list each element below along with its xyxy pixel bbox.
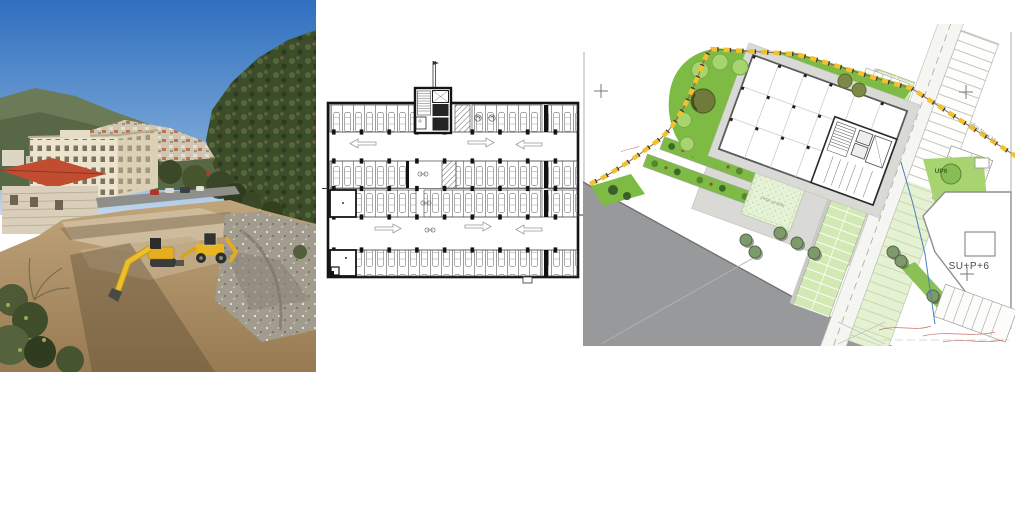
site-plan: Dečje igralište xyxy=(583,24,1015,346)
large-olive-tree xyxy=(691,89,715,113)
elevator-shaft xyxy=(433,104,449,116)
section-marker xyxy=(433,61,439,88)
dark-car xyxy=(180,187,190,193)
floor-plan-panel xyxy=(320,55,585,290)
photo-panel xyxy=(0,0,316,372)
site-plan-panel: Dečje igralište xyxy=(583,24,1015,346)
red-car xyxy=(150,190,159,195)
white-van xyxy=(196,186,204,191)
worker-figure xyxy=(207,171,210,176)
stair-core xyxy=(415,88,451,133)
page-canvas: Dečje igralište xyxy=(0,0,1024,512)
street-name-label: ulica Nova 13 xyxy=(969,121,997,144)
white-car xyxy=(165,188,174,193)
adjacent-building-label: SU+P+6 xyxy=(949,261,990,272)
garage-floor-plan xyxy=(320,55,585,290)
construction-site-photo xyxy=(0,0,316,372)
up6-label: UP6 xyxy=(935,168,948,175)
